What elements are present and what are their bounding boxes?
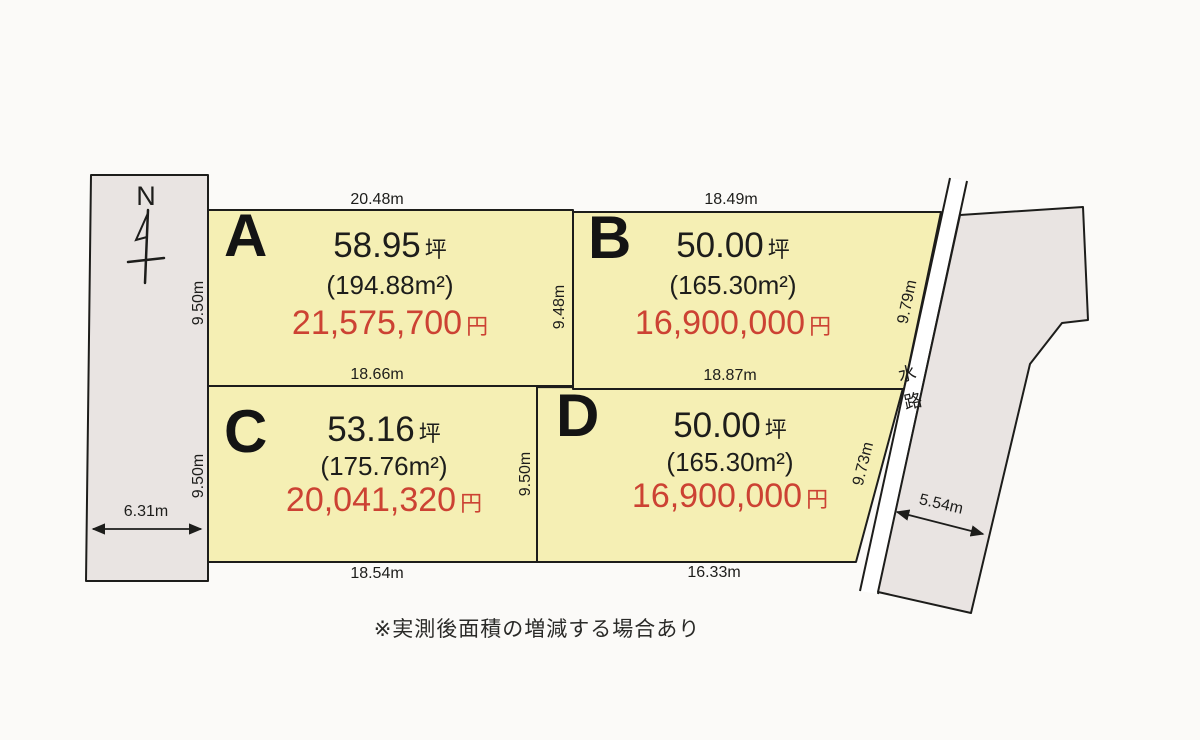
plot-a-area-m2: (194.88m²): [223, 272, 557, 298]
plot-a-price: 21,575,700円: [223, 306, 557, 340]
plot-b-price: 16,900,000円: [583, 306, 883, 340]
plot-d-price: 16,900,000円: [570, 479, 890, 513]
yen-unit: 円: [809, 314, 831, 339]
dim-plot-c-left: 9.50m: [191, 431, 207, 521]
survey-note: ※実測後面積の増減する場合あり: [277, 619, 797, 640]
yen-unit: 円: [466, 314, 488, 339]
land-plot-diagram: N 水路 A 58.95坪 (194.88m²) 21,575,700円 B 5…: [0, 0, 1200, 740]
plot-b-area-tsubo: 50.00坪: [583, 228, 883, 263]
dim-plot-b-bottom: 18.87m: [685, 368, 775, 384]
plot-d-area-m2: (165.30m²): [570, 449, 890, 475]
plot-a-area-tsubo: 58.95坪: [223, 228, 557, 263]
plot-a-info: 58.95坪 (194.88m²) 21,575,700円: [223, 228, 557, 340]
plot-c-price: 20,041,320円: [219, 483, 549, 517]
yen-unit: 円: [806, 487, 828, 512]
dim-plot-c-right: 9.50m: [518, 429, 534, 519]
dim-plot-d-bottom: 16.33m: [669, 565, 759, 581]
dim-plot-a-left: 9.50m: [191, 258, 207, 348]
dim-road-width: 6.31m: [101, 504, 191, 520]
north-label: N: [126, 183, 166, 210]
dim-plot-b-left: 9.48m: [552, 262, 568, 352]
yen-unit: 円: [460, 491, 482, 516]
dim-plot-b-top: 18.49m: [686, 192, 776, 208]
plot-b-info: 50.00坪 (165.30m²) 16,900,000円: [583, 228, 883, 340]
plot-b-area-m2: (165.30m²): [583, 272, 883, 298]
tsubo-unit: 坪: [419, 421, 441, 446]
dim-plot-a-bottom: 18.66m: [332, 367, 422, 383]
plot-d-area-tsubo: 50.00坪: [570, 408, 890, 443]
tsubo-unit: 坪: [768, 237, 790, 262]
plot-d-info: 50.00坪 (165.30m²) 16,900,000円: [570, 408, 890, 513]
tsubo-unit: 坪: [425, 237, 447, 262]
dim-plot-c-bottom: 18.54m: [332, 566, 422, 582]
plot-c-area-tsubo: 53.16坪: [219, 412, 549, 447]
dim-plot-a-top: 20.48m: [332, 192, 422, 208]
tsubo-unit: 坪: [765, 417, 787, 442]
plot-c-info: 53.16坪 (175.76m²) 20,041,320円: [219, 412, 549, 517]
plot-c-area-m2: (175.76m²): [219, 453, 549, 479]
